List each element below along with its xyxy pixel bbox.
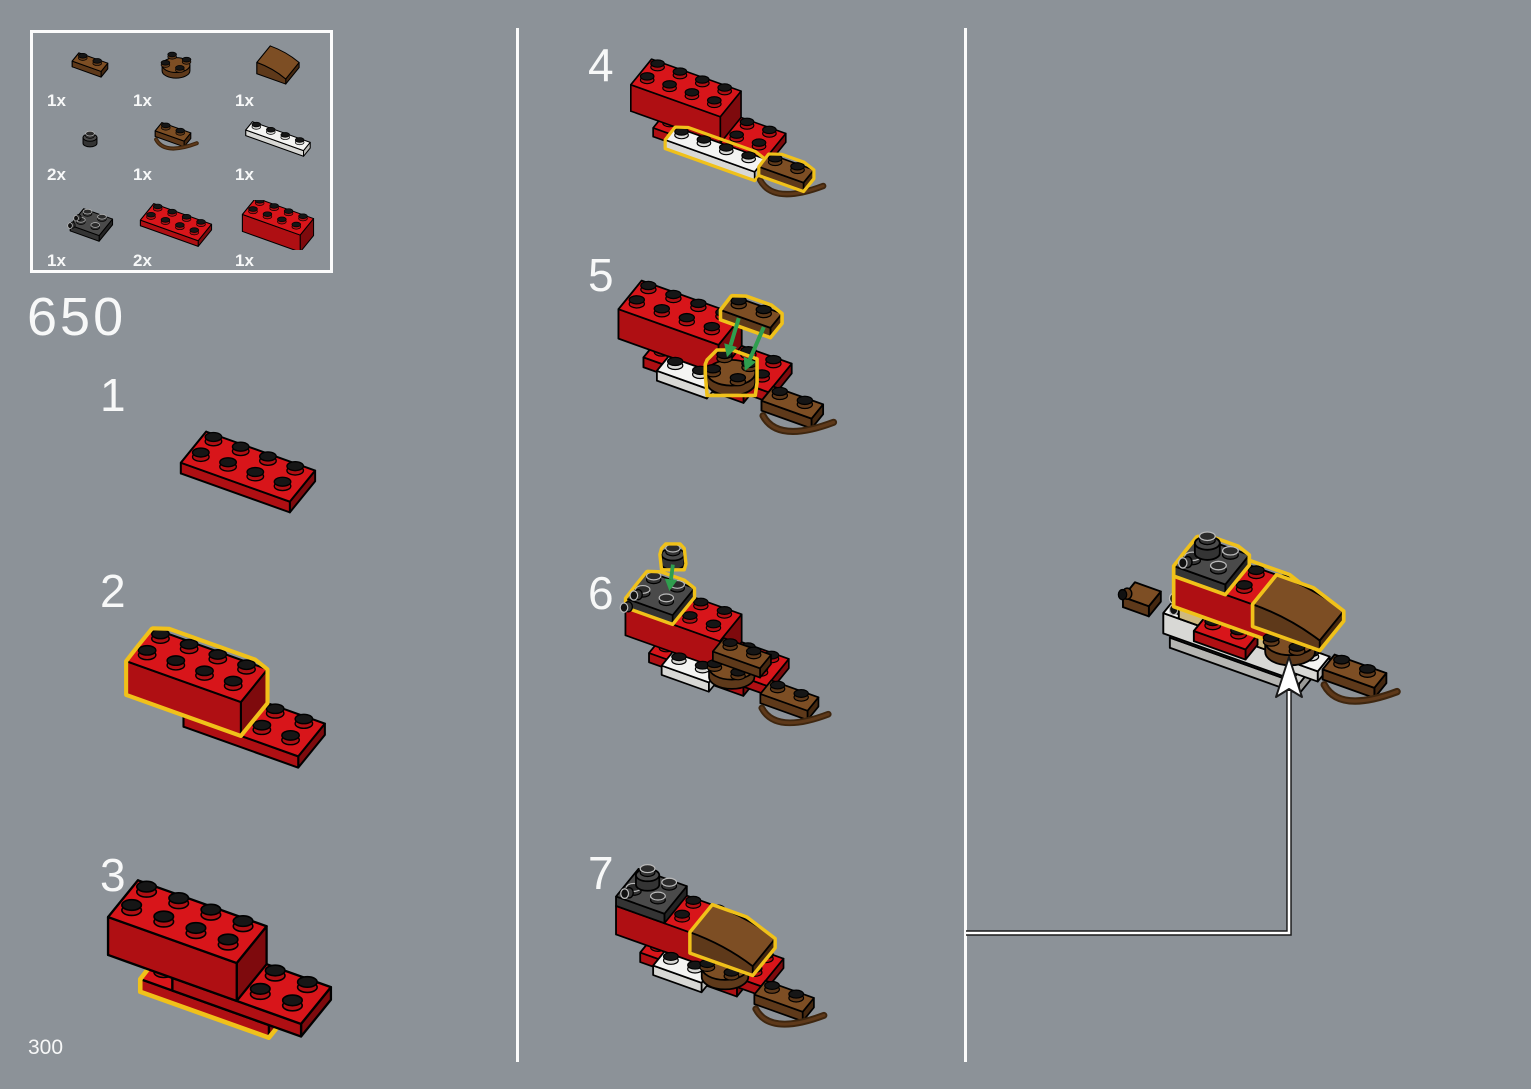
part-thumbnail-brown-1x2-plate-with-handle <box>133 114 219 164</box>
part-quantity-label: 1x <box>235 91 341 111</box>
assembly-pointer-arrow <box>950 645 1306 945</box>
part-quantity-label: 1x <box>47 251 133 271</box>
part-item: 1x <box>235 37 341 111</box>
part-quantity-label: 1x <box>235 165 341 185</box>
part-quantity-label: 1x <box>235 251 341 271</box>
step-7-illustration <box>604 848 836 1052</box>
column-divider-left <box>516 28 519 1062</box>
part-item: 1x <box>235 111 341 185</box>
part-quantity-label: 2x <box>133 251 235 271</box>
part-thumbnail-red-2x4-brick <box>235 200 321 250</box>
step-3-illustration <box>92 858 347 1060</box>
part-thumbnail-brown-1x2-rounded-plate <box>47 40 133 90</box>
page-number: 300 <box>28 1036 63 1060</box>
part-thumbnail-dark-1x1-round-plate <box>47 114 133 164</box>
part-quantity-label: 1x <box>47 91 133 111</box>
part-thumbnail-dark-2x2-bracket <box>47 200 133 250</box>
part-thumbnail-red-2x4-plate <box>133 200 219 250</box>
module-number: 650 <box>27 286 126 348</box>
step-2-illustration <box>108 614 343 782</box>
part-item: 1x <box>133 111 235 185</box>
part-item: 2x <box>47 111 133 185</box>
step-6-illustration <box>608 508 840 770</box>
part-item: 2x <box>133 185 235 271</box>
parts-grid: 1x1x1x2x1x1x1x2x1x <box>33 33 330 271</box>
step-4-illustration <box>612 48 842 216</box>
part-item: 1x <box>133 37 235 111</box>
part-item: 1x <box>235 185 341 271</box>
part-item: 1x <box>47 185 133 271</box>
pointer-leader-line-outline <box>966 691 1289 933</box>
part-thumbnail-brown-curved-slope <box>235 40 321 90</box>
part-quantity-label: 1x <box>133 91 235 111</box>
step-number-2: 2 <box>100 564 126 618</box>
part-thumbnail-brown-2x2-round-plate <box>133 40 219 90</box>
part-quantity-label: 2x <box>47 165 133 185</box>
step-5-illustration <box>606 256 846 468</box>
parts-callout-box: 1x1x1x2x1x1x1x2x1x <box>30 30 333 273</box>
step-number-4: 4 <box>588 38 614 92</box>
part-thumbnail-white-1x4-plate <box>235 114 321 164</box>
part-quantity-label: 1x <box>133 165 235 185</box>
pointer-leader-line <box>966 691 1289 933</box>
instruction-page: 1x1x1x2x1x1x1x2x1x 650 1234567 300 <box>0 0 1531 1089</box>
step-number-1: 1 <box>100 368 126 422</box>
part-item: 1x <box>47 37 133 111</box>
step-1-illustration <box>158 418 338 526</box>
